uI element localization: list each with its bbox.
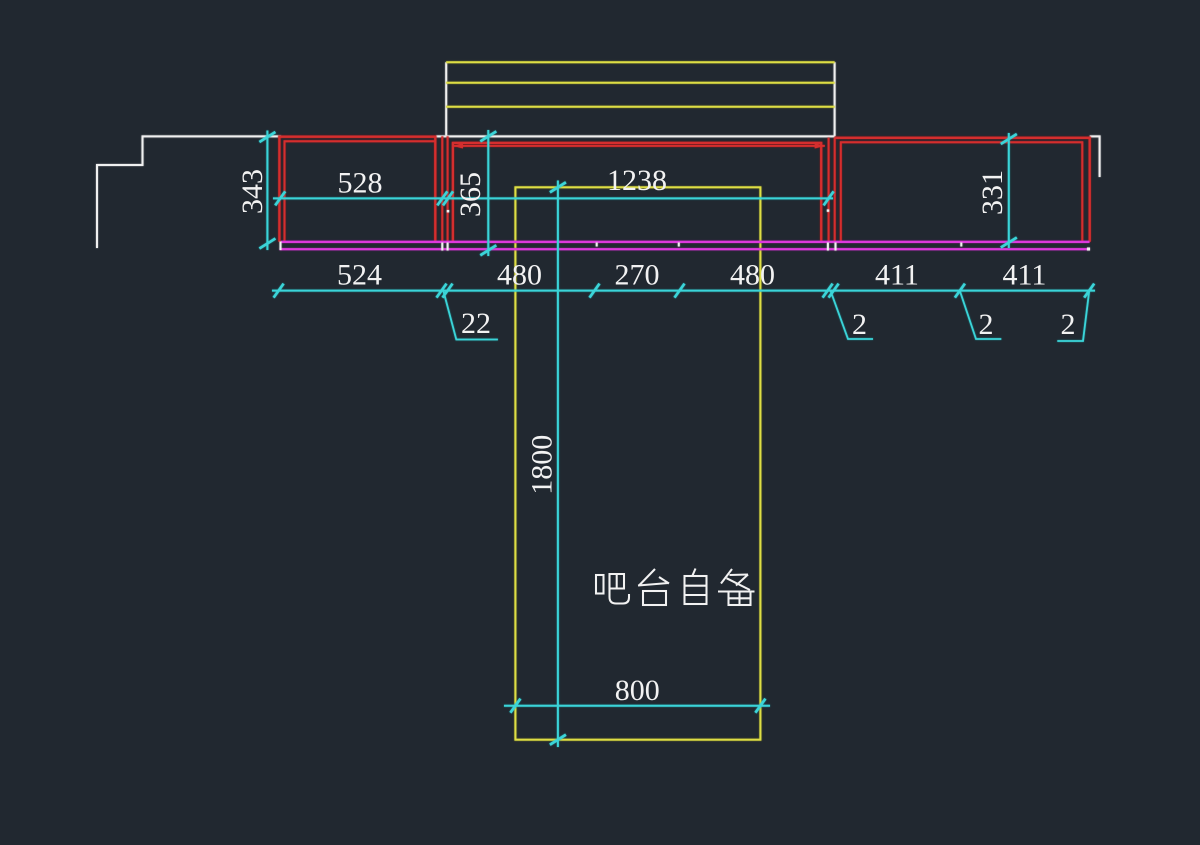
svg-text:411: 411 <box>875 259 919 292</box>
svg-text:331: 331 <box>976 170 1009 215</box>
svg-text:524: 524 <box>337 259 382 292</box>
svg-text:411: 411 <box>1003 259 1047 292</box>
svg-text:1800: 1800 <box>526 435 559 495</box>
svg-text:528: 528 <box>338 167 383 200</box>
svg-text:270: 270 <box>615 259 660 292</box>
svg-text:800: 800 <box>615 674 660 707</box>
svg-text:1238: 1238 <box>607 164 667 197</box>
svg-text:2: 2 <box>852 308 867 341</box>
svg-text:480: 480 <box>497 259 542 292</box>
svg-text:480: 480 <box>730 259 775 292</box>
svg-text:343: 343 <box>236 169 269 214</box>
svg-text:2: 2 <box>1061 308 1076 341</box>
svg-text:365: 365 <box>454 172 487 217</box>
svg-text:22: 22 <box>461 307 491 340</box>
svg-text:2: 2 <box>979 308 994 341</box>
